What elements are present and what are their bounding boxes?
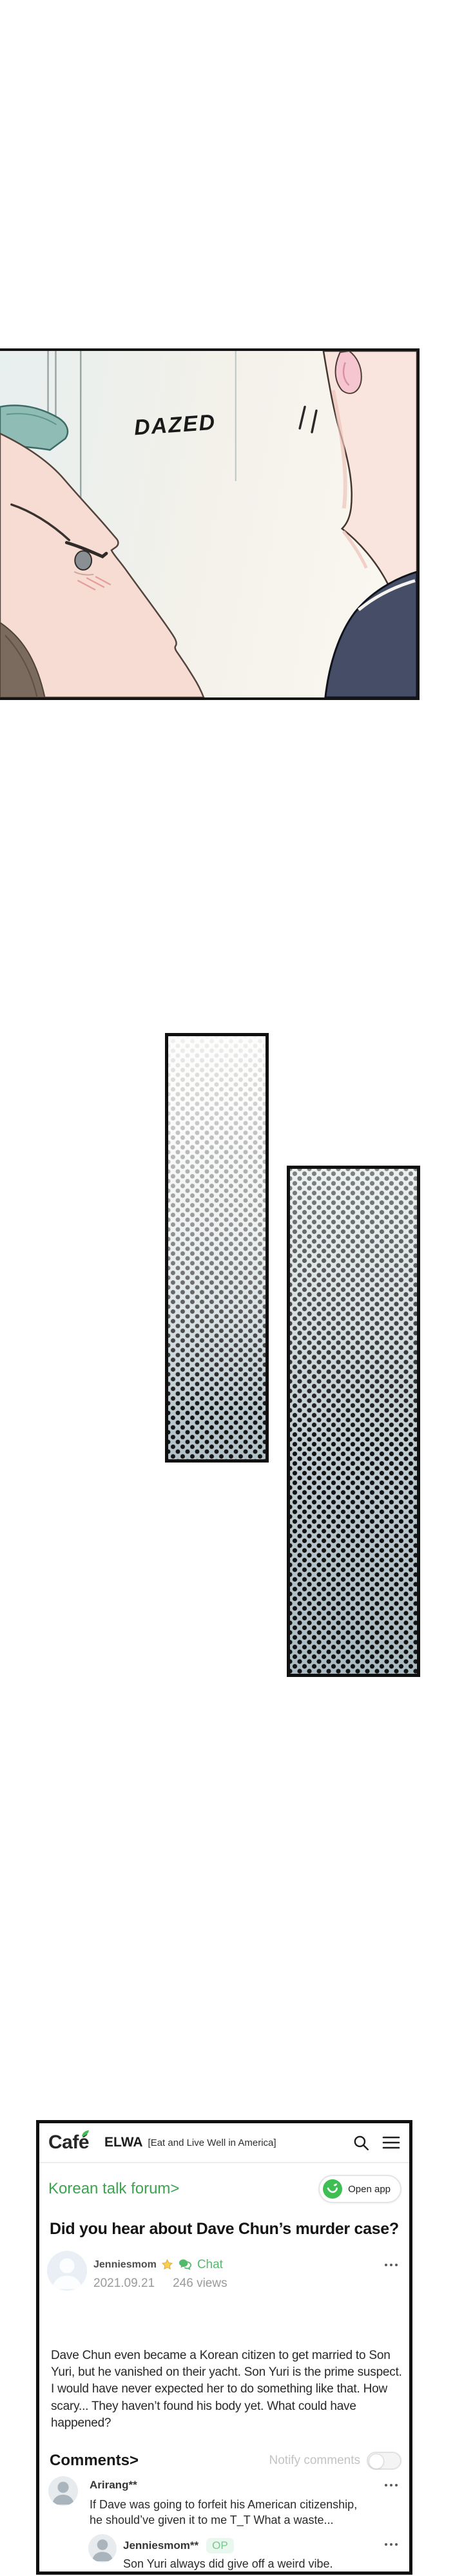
person-icon: [48, 2476, 78, 2506]
webtoon-page: DAZED Café ELWA [Eat and Live Well in Am…: [0, 0, 464, 2576]
cafe-logo: Café: [48, 2132, 89, 2154]
cafe-forum-card: Café ELWA [Eat and Live Well in America]: [36, 2120, 412, 2575]
comment-text: Son Yuri always did give off a weird vib…: [123, 2556, 394, 2571]
post-author-avatar[interactable]: [47, 2251, 87, 2291]
comments-heading: Comments>: [50, 2452, 139, 2470]
header-divider: [39, 2162, 409, 2163]
cafe-header: Café ELWA [Eat and Live Well in America]: [48, 2127, 400, 2158]
chat-link[interactable]: Chat: [197, 2258, 223, 2272]
comments-row: Comments> Notify comments: [50, 2452, 401, 2470]
comment-author-row: Jenniesmom** OP: [123, 2538, 234, 2553]
post-meta-row: 2021.09.21 246 views: [93, 2277, 227, 2291]
post-views: 246 views: [173, 2277, 227, 2291]
op-badge: OP: [206, 2538, 234, 2553]
comment-menu-button[interactable]: [382, 2541, 400, 2548]
comment-menu-button[interactable]: [382, 2481, 400, 2489]
comment-avatar[interactable]: [48, 2476, 78, 2506]
chat-bubble-icon: [178, 2257, 193, 2272]
post-body-text: Dave Chun even became a Korean citizen t…: [51, 2347, 405, 2432]
toggle-knob: [369, 2454, 384, 2469]
post-title: Did you hear about Dave Chun’s murder ca…: [50, 2220, 399, 2239]
notify-comments-label: Notify comments: [269, 2454, 360, 2468]
comment-author: Jenniesmom**: [123, 2539, 198, 2552]
forum-row: Korean talk forum> Open app: [48, 2175, 401, 2203]
halftone-panel-2: [287, 1166, 420, 1677]
comic-panel: DAZED: [0, 348, 420, 700]
notify-comments-toggle[interactable]: [367, 2452, 401, 2470]
post-author-name: Jenniesmom: [93, 2259, 157, 2271]
leaf-icon: [81, 2130, 90, 2137]
star-icon: [161, 2259, 173, 2271]
forum-link[interactable]: Korean talk forum>: [48, 2180, 179, 2198]
comment-author: Arirang**: [90, 2479, 137, 2492]
hamburger-menu-icon[interactable]: [382, 2136, 400, 2150]
comic-panel-art: [0, 351, 417, 697]
board-name: ELWA: [104, 2135, 143, 2150]
person-icon: [47, 2251, 87, 2291]
person-icon: [88, 2534, 117, 2562]
comment-avatar[interactable]: [88, 2534, 117, 2562]
cafe-app-icon: [323, 2179, 342, 2199]
post-date: 2021.09.21: [93, 2277, 155, 2291]
search-icon[interactable]: [353, 2134, 369, 2151]
post-menu-button[interactable]: [382, 2261, 400, 2269]
halftone-panel-1: [165, 1033, 269, 1463]
comment-text: If Dave was going to forfeit his America…: [90, 2497, 368, 2528]
post-author-row: Jenniesmom Chat: [93, 2257, 223, 2272]
open-app-button[interactable]: Open app: [318, 2175, 401, 2203]
board-subtitle: [Eat and Live Well in America]: [148, 2137, 276, 2148]
open-app-label: Open app: [348, 2184, 391, 2195]
